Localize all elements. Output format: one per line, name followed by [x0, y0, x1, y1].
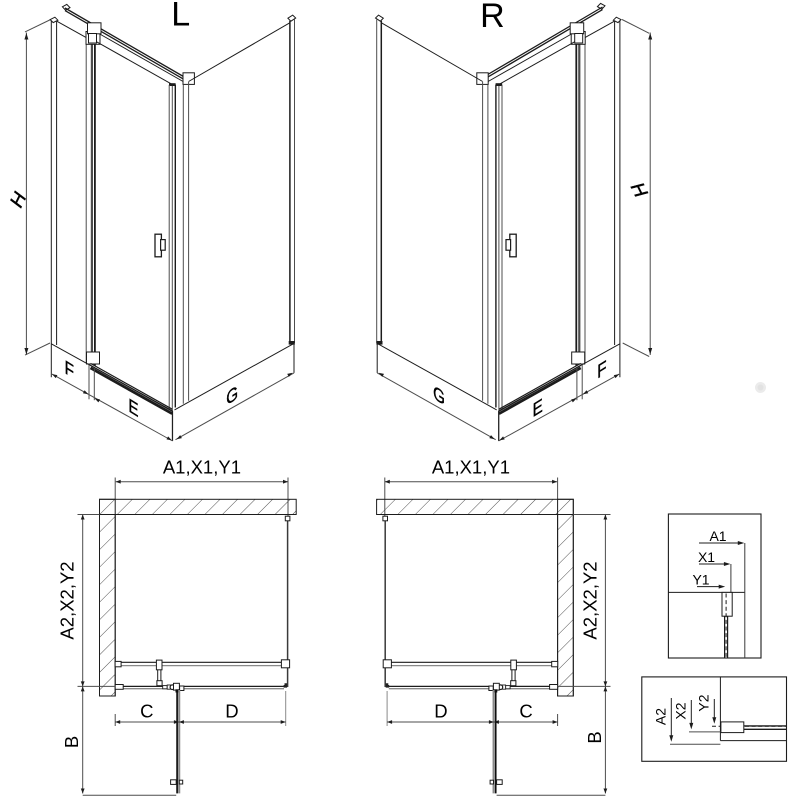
- svg-text:A1,X1,Y1: A1,X1,Y1: [163, 457, 241, 478]
- svg-text:A2: A2: [653, 708, 669, 725]
- svg-text:L: L: [171, 0, 190, 34]
- svg-text:X2: X2: [673, 702, 689, 719]
- svg-text:Y1: Y1: [692, 572, 709, 588]
- svg-text:X1: X1: [698, 549, 715, 565]
- svg-text:D: D: [434, 701, 447, 722]
- svg-text:A1,X1,Y1: A1,X1,Y1: [432, 457, 510, 478]
- svg-text:C: C: [519, 701, 532, 722]
- svg-text:D: D: [225, 701, 238, 722]
- svg-text:B: B: [61, 736, 82, 748]
- svg-text:A1: A1: [709, 528, 726, 544]
- svg-text:R: R: [480, 0, 505, 35]
- svg-text:A2,X2,Y2: A2,X2,Y2: [57, 561, 78, 639]
- svg-text:C: C: [140, 701, 153, 722]
- svg-text:B: B: [584, 731, 605, 743]
- svg-text:A2,X2,Y2: A2,X2,Y2: [579, 561, 600, 639]
- svg-text:Y2: Y2: [696, 694, 712, 711]
